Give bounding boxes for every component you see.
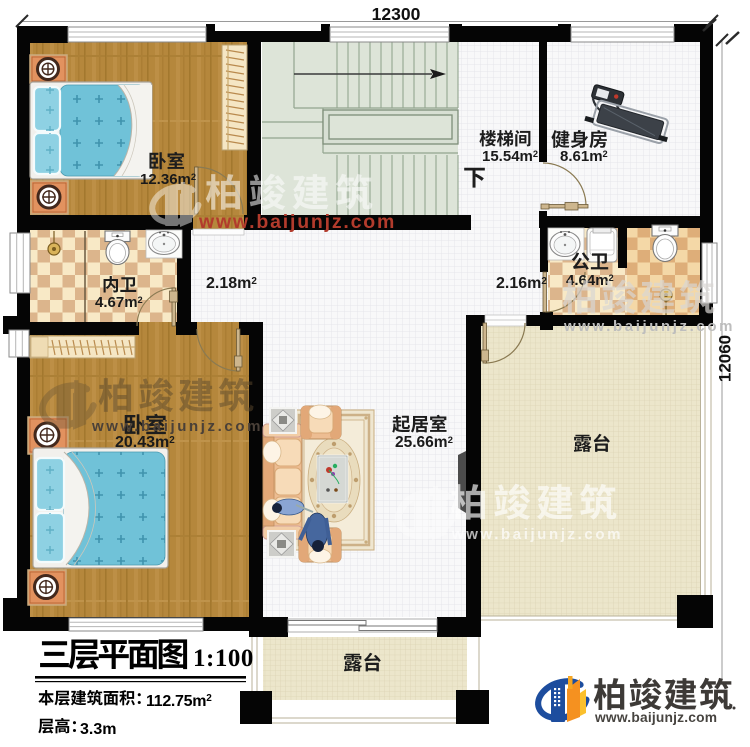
svg-text:1:100: 1:100 — [193, 645, 254, 672]
svg-text:2.16m2: 2.16m2 — [496, 275, 547, 292]
svg-text:112.75m2: 112.75m2 — [146, 693, 212, 710]
svg-text:12300: 12300 — [372, 4, 421, 24]
svg-text:15.54m2: 15.54m2 — [482, 148, 538, 165]
svg-text:12060: 12060 — [716, 335, 735, 382]
svg-text:www.baijunjz.com: www.baijunjz.com — [594, 710, 717, 725]
svg-text:www.baijunjz.com: www.baijunjz.com — [563, 318, 735, 335]
svg-text:3.3m: 3.3m — [80, 721, 116, 738]
svg-text:www.baijunjz.com: www.baijunjz.com — [451, 526, 623, 543]
svg-text:2.18m2: 2.18m2 — [206, 275, 257, 292]
svg-text:www.baijunjz.com: www.baijunjz.com — [198, 211, 396, 233]
svg-text:25.66m2: 25.66m2 — [395, 434, 453, 451]
svg-text:www.baijunjz.com: www.baijunjz.com — [91, 418, 263, 435]
svg-text:20.43m2: 20.43m2 — [115, 434, 175, 451]
svg-text:4.67m2: 4.67m2 — [95, 294, 143, 311]
svg-text:8.61m2: 8.61m2 — [560, 148, 608, 165]
